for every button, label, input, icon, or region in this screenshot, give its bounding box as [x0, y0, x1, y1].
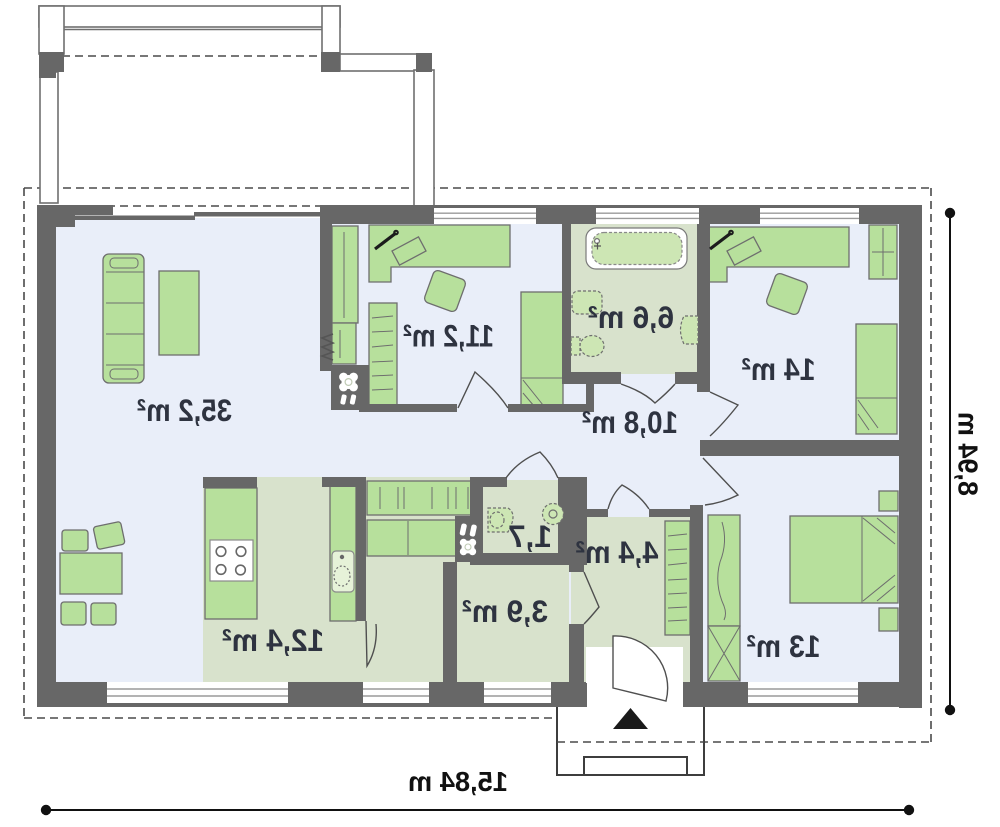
- svg-text:12,4 m²: 12,4 m²: [222, 622, 324, 658]
- svg-text:11,2 m²: 11,2 m²: [403, 318, 494, 354]
- svg-text:15,84 m: 15,84 m: [408, 766, 508, 797]
- svg-text:4,4 m²: 4,4 m²: [576, 534, 659, 570]
- svg-text:35,2 m²: 35,2 m²: [137, 392, 232, 428]
- svg-text:13 m²: 13 m²: [747, 628, 821, 664]
- svg-text:14 m²: 14 m²: [742, 351, 816, 387]
- svg-text:6,6 m²: 6,6 m²: [588, 299, 674, 335]
- svg-text:10,8 m²: 10,8 m²: [582, 404, 678, 440]
- svg-text:8,94 m: 8,94 m: [953, 412, 984, 496]
- svg-text:1,7: 1,7: [508, 518, 552, 554]
- svg-text:3,9 m²: 3,9 m²: [462, 593, 548, 629]
